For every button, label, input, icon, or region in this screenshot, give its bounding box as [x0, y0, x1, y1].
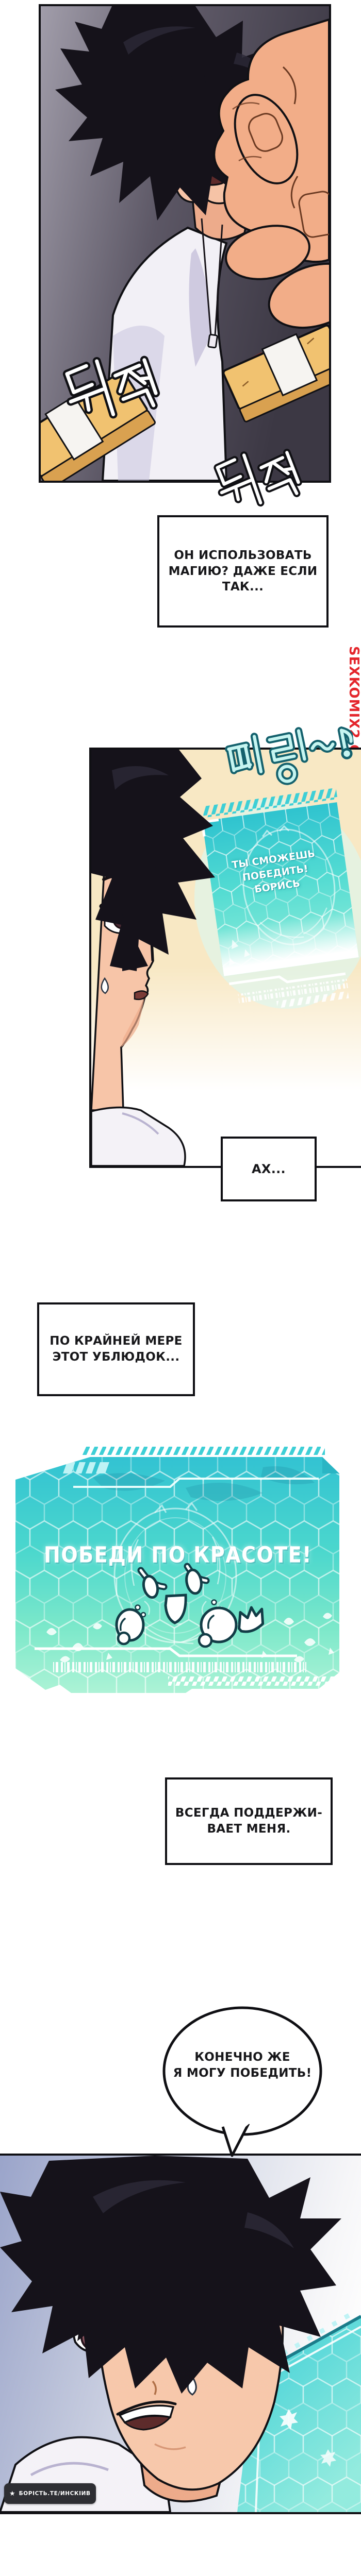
translator-badge: ★ БОРІСТЬ.ТЕ/ИНСКІИВ: [4, 2483, 96, 2504]
narration-text: ОН ИСПОЛЬЗОВАТЬ МАГИЮ? ДАЖЕ ЕСЛИ ТАК...: [169, 548, 318, 595]
panel-2-status-window: ТЫ СМОЖЕШЬ ПОБЕДИТЬ! БОРИСЬ: [89, 748, 361, 1168]
narration-text: ВСЕГДА ПОДДЕРЖИ- ВАЕТ МЕНЯ.: [175, 1805, 322, 1837]
narration-text: ПО КРАЙНЕЙ МЕРЕ ЭТОТ УБЛЮДОК...: [50, 1333, 182, 1365]
holo-screen-big: ПОБЕДИ ПО КРАСОТЕ!: [15, 1447, 340, 1695]
panel-2-artwork: [91, 750, 361, 1166]
panel-3-confident-boy: ★ БОРІСТЬ.ТЕ/ИНСКІИВ: [0, 2154, 361, 2514]
badge-text: БОРІСТЬ.ТЕ/ИНСКІИВ: [19, 2490, 91, 2497]
webtoon-page: ОН ИСПОЛЬЗОВАТЬ МАГИЮ? ДАЖЕ ЕСЛИ ТАК... …: [0, 0, 361, 2576]
speech-bubble: КОНЕЧНО ЖЕ Я МОГУ ПОБЕДИТЬ!: [161, 2005, 326, 2160]
holo-screen-big-art: [15, 1447, 340, 1695]
narration-box: ПО КРАЙНЕЙ МЕРЕ ЭТОТ УБЛЮДОК...: [37, 1302, 195, 1396]
narration-box: АХ...: [221, 1137, 317, 1201]
hatch-top: [83, 1447, 325, 1455]
holo-screen-small: [180, 785, 361, 1020]
panel-1-worried-boy: [39, 4, 331, 483]
badge-star-icon: ★: [9, 2490, 15, 2497]
narration-box: ОН ИСПОЛЬЗОВАТЬ МАГИЮ? ДАЖЕ ЕСЛИ ТАК...: [157, 515, 329, 628]
panel-3-artwork: [0, 2156, 361, 2512]
speech-text: КОНЕЧНО ЖЕ Я МОГУ ПОБЕДИТЬ!: [166, 2049, 319, 2081]
big-screen-title: ПОБЕДИ ПО КРАСОТЕ!: [15, 1542, 340, 1567]
narration-box: ВСЕГДА ПОДДЕРЖИ- ВАЕТ МЕНЯ.: [165, 1777, 333, 1865]
narration-text: АХ...: [252, 1161, 286, 1177]
boy-profile: [91, 750, 215, 1166]
